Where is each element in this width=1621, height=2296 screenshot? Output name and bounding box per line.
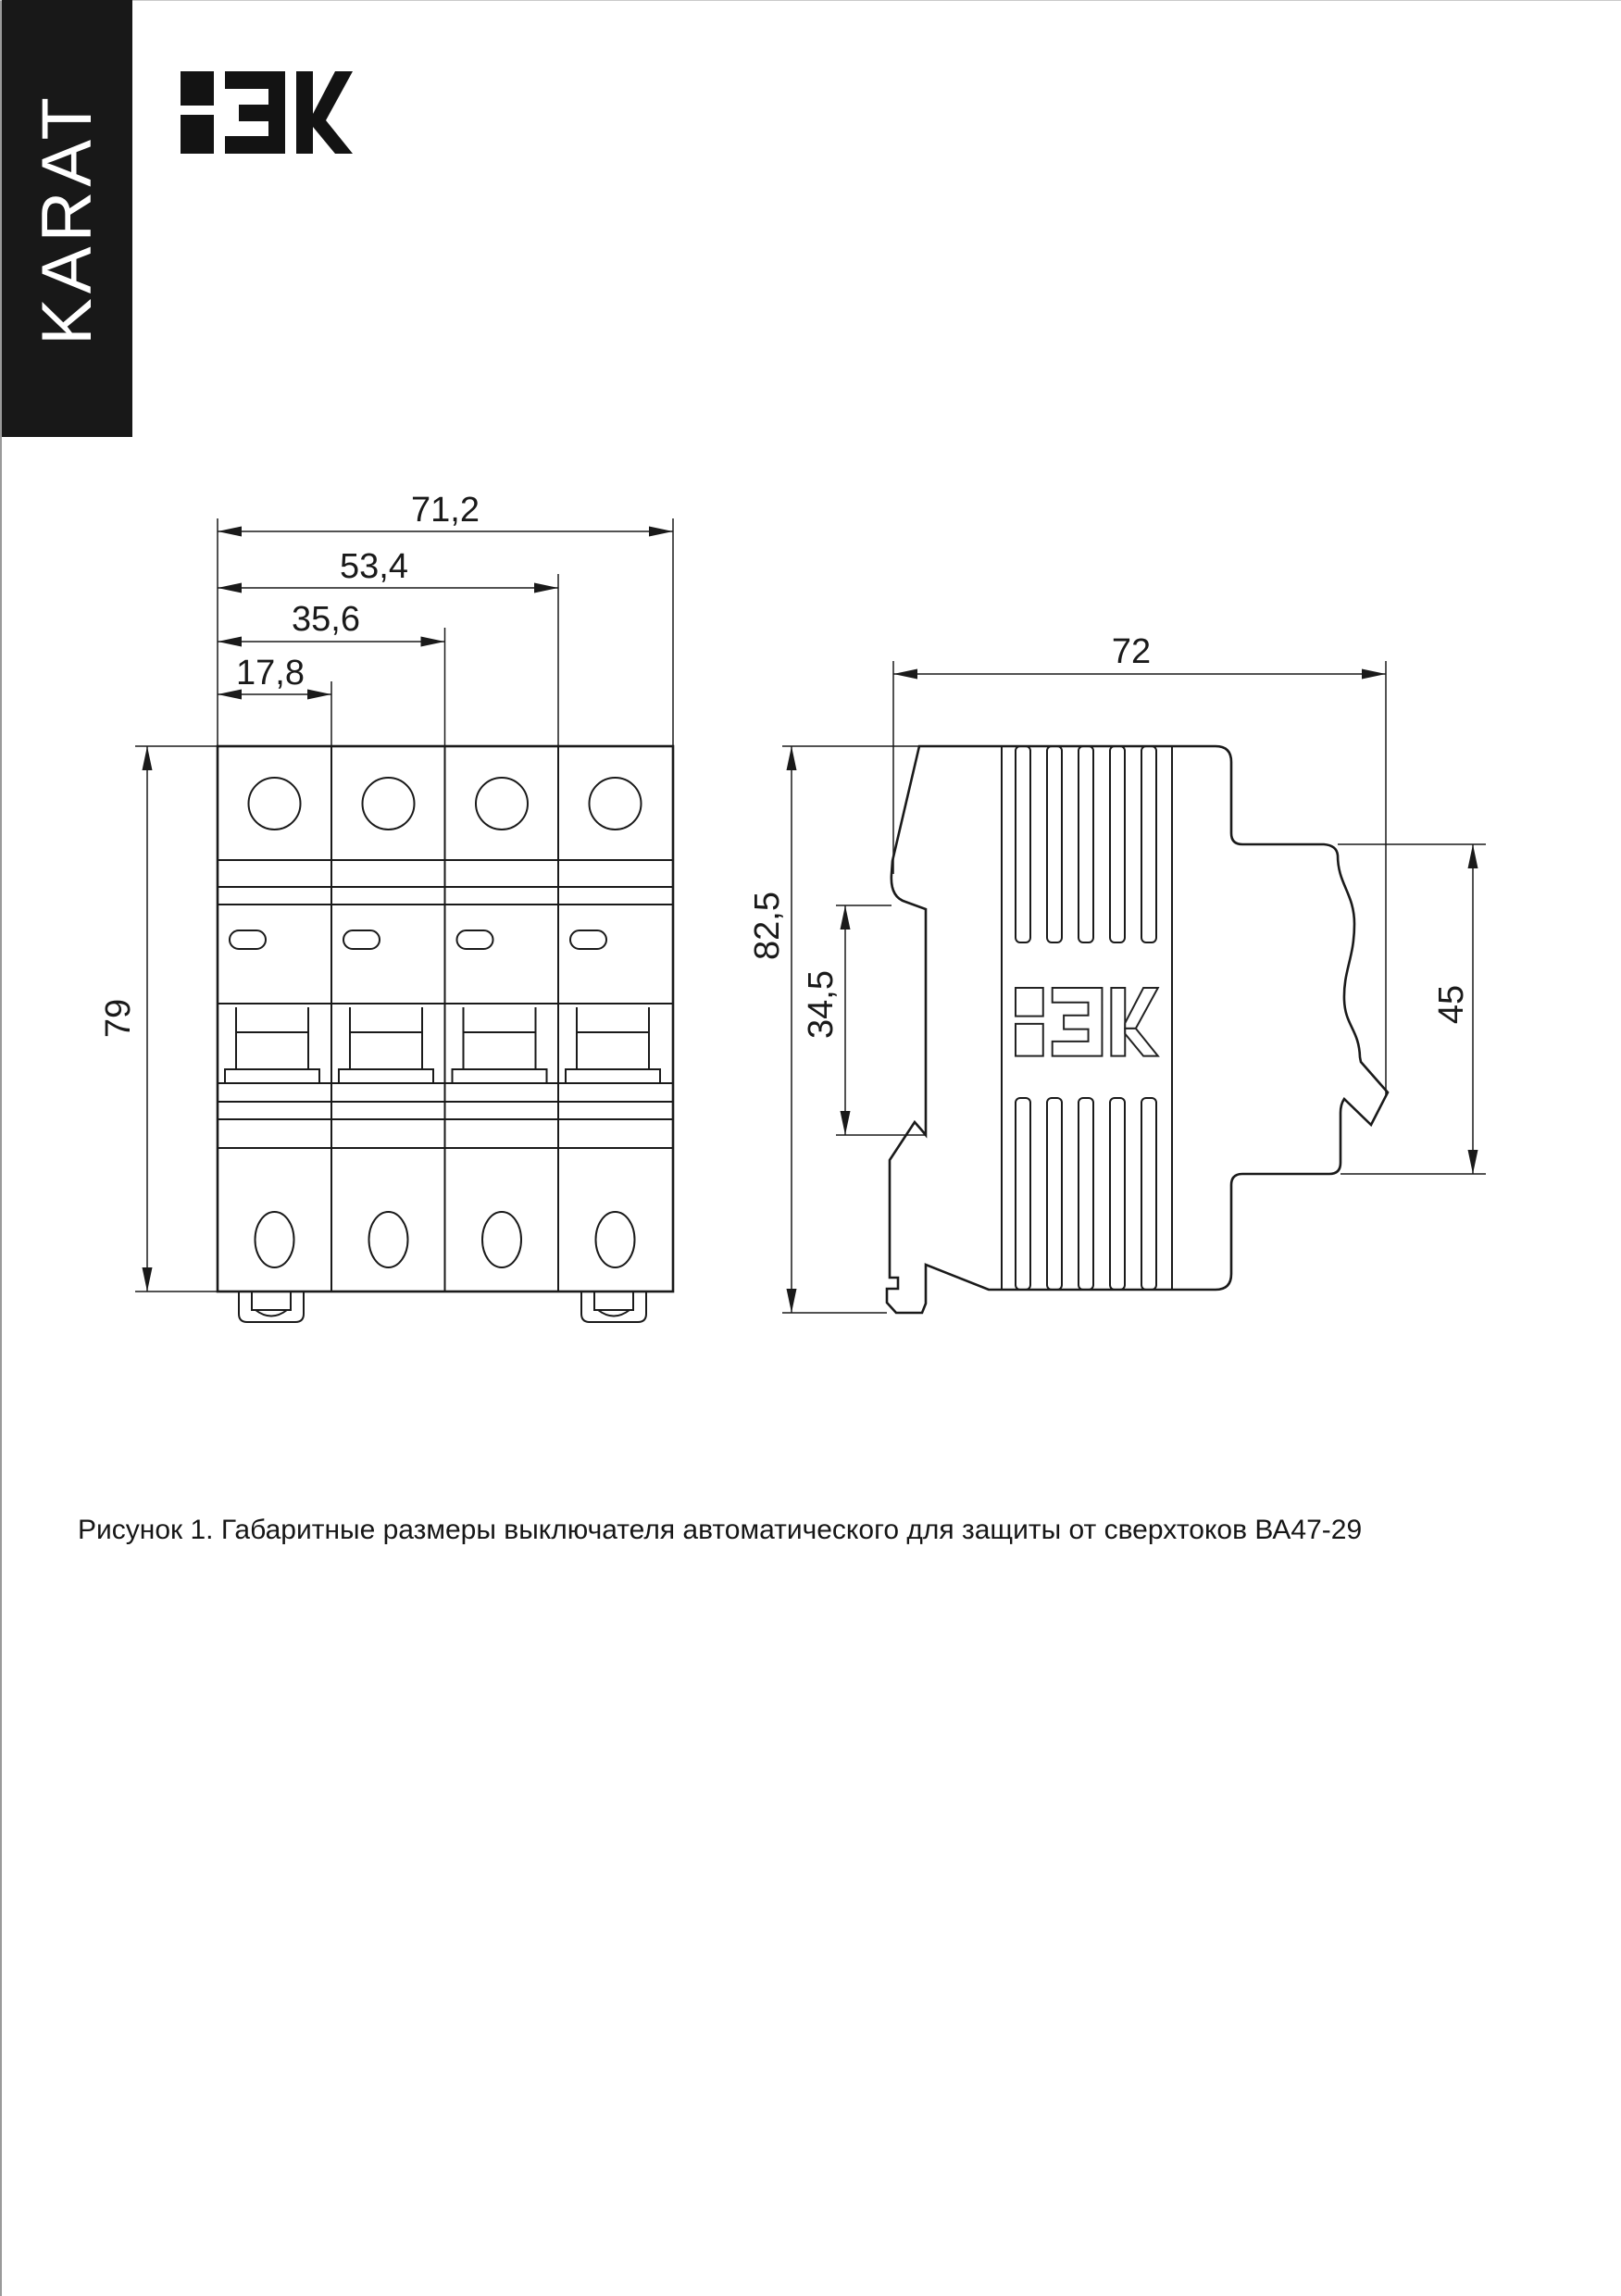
pole-2-decor [339,778,433,1267]
front-pole-dividers [331,746,558,1291]
dim-width-3poles: 53,4 [340,547,408,586]
pole-3-decor [453,778,547,1267]
dim-width-2poles: 35,6 [292,600,360,639]
vent-slots-lower [1016,1098,1156,1290]
iek-logo-embossed [1016,988,1158,1056]
iek-logo [181,71,353,154]
vent-slots-upper [1016,746,1156,942]
figure-caption: Рисунок 1. Габаритные размеры выключател… [78,1515,1362,1546]
dim-width-total: 71,2 [411,491,480,530]
din-clip-left [239,1291,304,1322]
front-view [218,746,673,1322]
dim-din-channel: 34,5 [802,970,841,1039]
din-clip-right [581,1291,646,1322]
pole-4-decor [566,778,660,1267]
side-view [887,746,1388,1313]
datasheet-page: KARAT [0,0,1621,2296]
dim-width-1pole: 17,8 [236,654,305,693]
dim-front-face-height: 45 [1432,985,1471,1024]
dim-height-total: 82,5 [748,892,787,960]
dimension-arrowheads [143,527,1478,1314]
technical-drawing-svg: 71,2 53,4 35,6 17,8 79 72 82,5 34,5 45 [0,0,1621,2296]
dim-depth: 72 [1112,632,1151,671]
dimension-labels: 71,2 53,4 35,6 17,8 79 72 82,5 34,5 45 [99,491,1471,1039]
pole-1-decor [225,778,319,1267]
dim-front-height: 79 [99,999,138,1038]
